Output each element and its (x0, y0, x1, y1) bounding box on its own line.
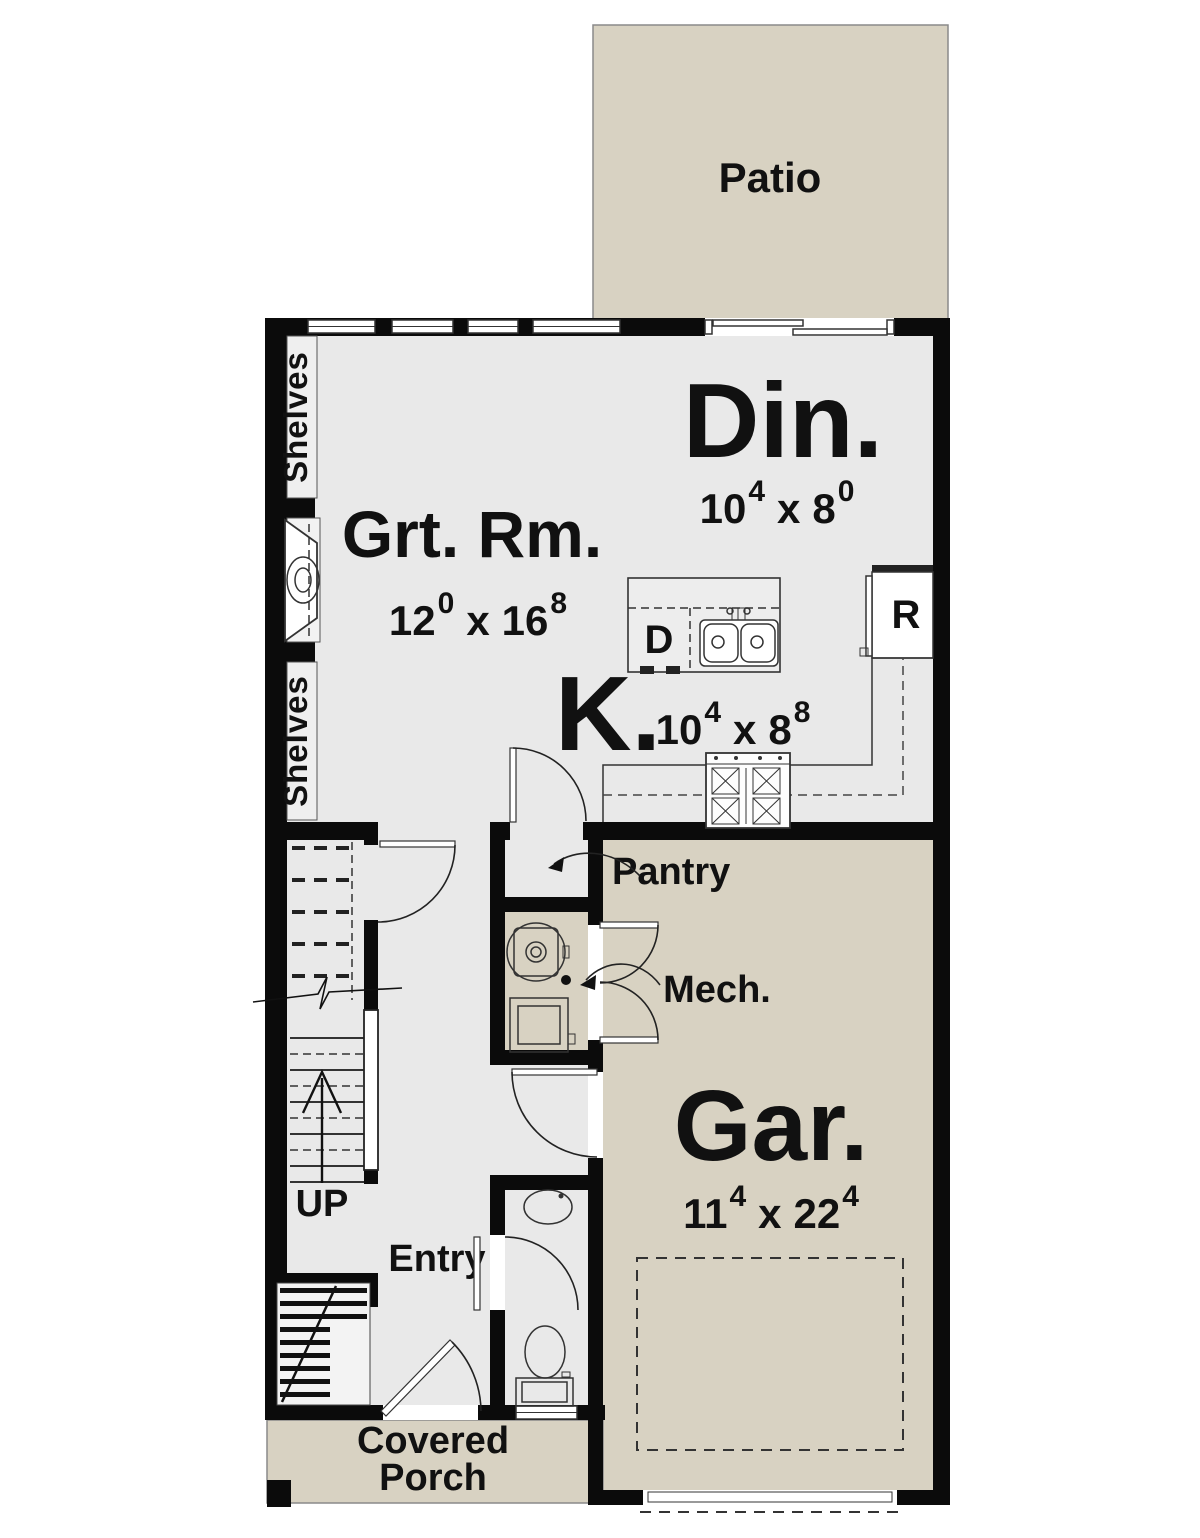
powder-door-leaf (474, 1237, 480, 1310)
dishwasher-label: D (645, 618, 674, 662)
mech-door-leaf-top (600, 922, 658, 928)
window-glyph-3 (468, 320, 518, 333)
entry: Entry (388, 1238, 485, 1280)
mech-label: Mech. (663, 969, 771, 1011)
window-glyph-2 (392, 320, 453, 333)
floor-plan-drawing: Patio Covered Porch (0, 0, 1200, 1538)
shelves-lower-label: Shelves (277, 675, 314, 807)
stairs-up-label: UP (296, 1183, 349, 1225)
window-glyph-4 (533, 320, 620, 333)
patio-area: Patio (593, 25, 948, 320)
patio-label: Patio (719, 154, 822, 201)
dining-label: Din. (683, 362, 883, 480)
great-room-label: Grt. Rm. (342, 497, 602, 571)
shelves-upper-label: Shelves (277, 351, 314, 483)
kitchen-island: D (628, 578, 780, 674)
dining-room: Din. 104x80 (683, 362, 883, 532)
mech-door-leaf-bottom (600, 1037, 658, 1043)
shelves-upper: Shelves (277, 336, 317, 498)
stair-door-leaf (380, 841, 455, 847)
porch-label-line2: Porch (379, 1457, 487, 1499)
fireplace (285, 518, 320, 642)
range-icon (706, 753, 790, 828)
window-glyph-1 (308, 320, 375, 333)
patio-sliding-door (705, 318, 894, 336)
garage-label: Gar. (674, 1070, 869, 1182)
bath-window-glyph (516, 1406, 577, 1419)
coat-closet (277, 1283, 370, 1405)
pantry-label: Pantry (612, 851, 730, 893)
refrigerator: R (860, 565, 933, 658)
stairs-railing (364, 1010, 378, 1170)
floor-plan-page: Patio Covered Porch (0, 0, 1200, 1538)
entry-label: Entry (388, 1238, 485, 1280)
porch-label-line1: Covered (357, 1420, 509, 1462)
refrigerator-label: R (892, 593, 921, 637)
covered-porch: Covered Porch (267, 1420, 603, 1503)
shelves-lower: Shelves (277, 662, 317, 820)
pantry-door-leaf (510, 748, 516, 822)
